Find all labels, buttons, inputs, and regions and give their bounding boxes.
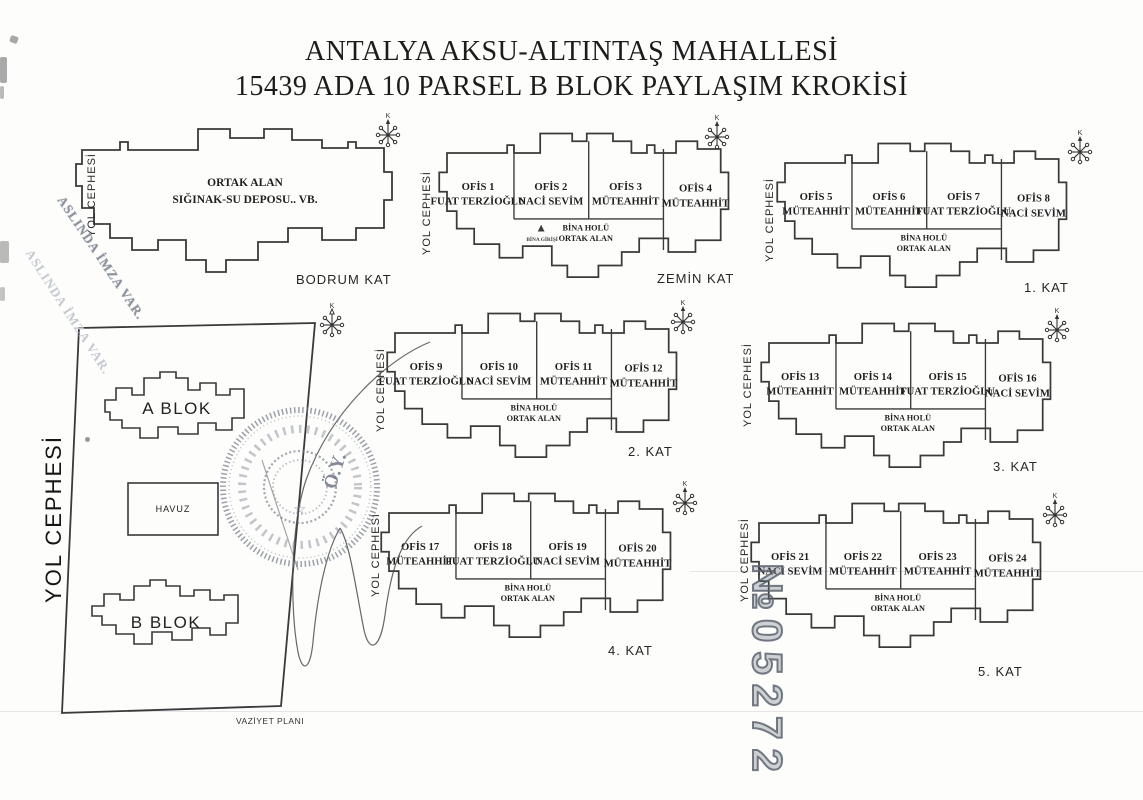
office-name: OFİS 6 bbox=[872, 191, 906, 203]
hall-label: ORTAK ALAN bbox=[501, 594, 555, 603]
b-blok-outline bbox=[92, 580, 238, 644]
scan-smudge bbox=[0, 287, 5, 301]
floor-3: YOL CEPHESİ OFİS 13 MÜTEAHHİT OFİS 14 MÜ… bbox=[736, 308, 1081, 498]
office-owner: MÜTEAHHİT bbox=[904, 564, 972, 577]
floor-caption: 5. KAT bbox=[978, 664, 1023, 679]
north-compass-icon: K bbox=[670, 479, 700, 517]
office-name: OFİS 14 bbox=[854, 371, 893, 383]
hall-label: BİNA HOLÜ bbox=[563, 223, 610, 233]
office-owner: FUAT TERZİOĞLU bbox=[916, 204, 1011, 217]
office-owner: MÜTEAHHİT bbox=[604, 556, 672, 569]
entrance-arrow-icon bbox=[538, 225, 545, 232]
office-name: OFİS 2 bbox=[534, 181, 567, 193]
office-name: OFİS 13 bbox=[781, 371, 819, 383]
north-letter: K bbox=[386, 113, 391, 120]
office-owner: MÜTEAHHİT bbox=[766, 384, 834, 397]
pool-label: HAVUZ bbox=[156, 504, 191, 514]
office-name: OFİS 11 bbox=[555, 361, 593, 373]
office-owner: FUAT TERZİOĞLU bbox=[900, 384, 995, 397]
hall-label: BİNA HOLÜ bbox=[511, 403, 558, 413]
room-label: ORTAK ALAN bbox=[207, 177, 283, 189]
north-letter: K bbox=[715, 115, 720, 122]
north-letter: K bbox=[681, 300, 686, 307]
office-owner: NACİ SEVİM bbox=[518, 195, 583, 207]
office-name: OFİS 20 bbox=[618, 543, 656, 555]
office-name: OFİS 3 bbox=[609, 181, 642, 193]
document-title: ANTALYA AKSU-ALTINTAŞ MAHALLESİ 15439 AD… bbox=[0, 36, 1143, 103]
b-blok-label: B BLOK bbox=[131, 613, 201, 632]
seal-star-icon: ☆ bbox=[293, 501, 306, 518]
title-line-1: ANTALYA AKSU-ALTINTAŞ MAHALLESİ bbox=[0, 36, 1143, 68]
entrance-label: BİNA GİRİŞİ bbox=[526, 236, 558, 243]
office-owner: MÜTEAHHİT bbox=[610, 376, 678, 389]
floor-zemin: YOL CEPHESİ OFİS 1 FUAT TERZİOĞLU OFİS 2… bbox=[414, 118, 759, 308]
office-name: OFİS 22 bbox=[844, 551, 882, 563]
office-name: OFİS 4 bbox=[679, 183, 713, 195]
north-compass-icon: K bbox=[373, 111, 403, 149]
office-owner: MÜTEAHHİT bbox=[974, 566, 1042, 579]
office-owner: MÜTEAHHİT bbox=[839, 384, 907, 397]
hall-label: ORTAK ALAN bbox=[871, 604, 925, 613]
a-blok-label: A BLOK bbox=[142, 399, 211, 418]
floor-caption: 2. KAT bbox=[628, 444, 673, 459]
north-letter: K bbox=[683, 481, 688, 488]
office-name: OFİS 7 bbox=[947, 191, 981, 203]
site-plan-caption: VAZİYET PLANI bbox=[236, 716, 304, 726]
north-compass-icon: K bbox=[1065, 128, 1095, 166]
floor-1: YOL CEPHESİ OFİS 5 MÜTEAHHİT OFİS 6 MÜTE… bbox=[752, 128, 1097, 318]
office-owner: MÜTEAHHİT bbox=[829, 564, 897, 577]
north-compass-icon: K bbox=[1042, 306, 1072, 344]
office-owner: MÜTEAHHİT bbox=[592, 194, 660, 207]
floor-caption: ZEMİN KAT bbox=[657, 271, 734, 286]
room-label: SIĞINAK-SU DEPOSU.. VB. bbox=[172, 192, 317, 206]
office-name: OFİS 8 bbox=[1017, 193, 1050, 205]
seal-initials: Ö.Y. bbox=[320, 451, 351, 492]
north-compass-icon: K bbox=[1040, 491, 1070, 529]
north-compass-icon: K bbox=[702, 113, 732, 151]
office-name: OFİS 19 bbox=[548, 541, 586, 553]
office-owner: MÜTEAHHİT bbox=[782, 204, 850, 217]
floor-caption: BODRUM KAT bbox=[296, 272, 392, 287]
street-side-label: YOL CEPHESİ bbox=[764, 178, 776, 262]
floor-caption: 3. KAT bbox=[993, 459, 1038, 474]
office-owner: NACİ SEVİM bbox=[985, 387, 1050, 399]
title-line-2: 15439 ADA 10 PARSEL B BLOK PAYLAŞIM KROK… bbox=[0, 71, 1143, 103]
hall-label: BİNA HOLÜ bbox=[875, 593, 922, 603]
office-name: OFİS 5 bbox=[800, 191, 833, 203]
office-owner: FUAT TERZİOĞLU bbox=[431, 194, 526, 207]
hall-label: BİNA HOLÜ bbox=[885, 413, 932, 423]
floor-caption: 4. KAT bbox=[608, 643, 653, 658]
kat1-plan-drawing: OFİS 5 MÜTEAHHİT OFİS 6 MÜTEAHHİT OFİS 7… bbox=[752, 128, 1082, 293]
street-side-label: YOL CEPHESİ bbox=[421, 171, 433, 255]
office-owner: MÜTEAHHİT bbox=[540, 374, 608, 387]
office-name: OFİS 15 bbox=[928, 371, 966, 383]
north-letter: K bbox=[1078, 130, 1083, 137]
hall-label: ORTAK ALAN bbox=[897, 244, 951, 253]
hall-label: ORTAK ALAN bbox=[881, 424, 935, 433]
north-letter: K bbox=[1053, 493, 1058, 500]
office-name: OFİS 21 bbox=[771, 551, 809, 563]
zemin-plan-drawing: OFİS 1 FUAT TERZİOĞLU OFİS 2 NACİ SEVİM … bbox=[414, 118, 744, 283]
street-side-label: YOL CEPHESİ bbox=[742, 343, 754, 427]
north-compass-icon: K bbox=[668, 298, 698, 336]
street-side-label-large: YOL CEPHESİ bbox=[41, 435, 67, 603]
hall-label: ORTAK ALAN bbox=[559, 234, 613, 243]
office-owner: NACİ SEVİM bbox=[535, 555, 600, 567]
office-name: OFİS 24 bbox=[988, 553, 1027, 565]
hall-label: BİNA HOLÜ bbox=[901, 233, 948, 243]
office-owner: NACİ SEVİM bbox=[1001, 207, 1066, 219]
scan-smudge bbox=[0, 241, 9, 263]
hall-label: ORTAK ALAN bbox=[507, 414, 561, 423]
hall-label: BİNA HOLÜ bbox=[505, 583, 552, 593]
office-name: OFİS 1 bbox=[462, 181, 495, 193]
office-owner: MÜTEAHHİT bbox=[662, 196, 730, 209]
north-letter: K bbox=[1055, 308, 1060, 315]
office-name: OFİS 16 bbox=[998, 373, 1037, 385]
office-name: OFİS 12 bbox=[624, 363, 662, 375]
floor-caption: 1. KAT bbox=[1024, 280, 1069, 295]
office-name: OFİS 23 bbox=[918, 551, 956, 563]
round-seal-stamp: ☆ Ö.Y. bbox=[215, 402, 385, 572]
scanned-plan-document: { "title": { "line1": "ANTALYA AKSU-ALTI… bbox=[0, 0, 1143, 800]
serial-number-stamp: №05272 bbox=[743, 563, 791, 781]
kat3-plan-drawing: OFİS 13 MÜTEAHHİT OFİS 14 MÜTEAHHİT OFİS… bbox=[736, 308, 1066, 473]
office-owner: MÜTEAHHİT bbox=[855, 204, 923, 217]
